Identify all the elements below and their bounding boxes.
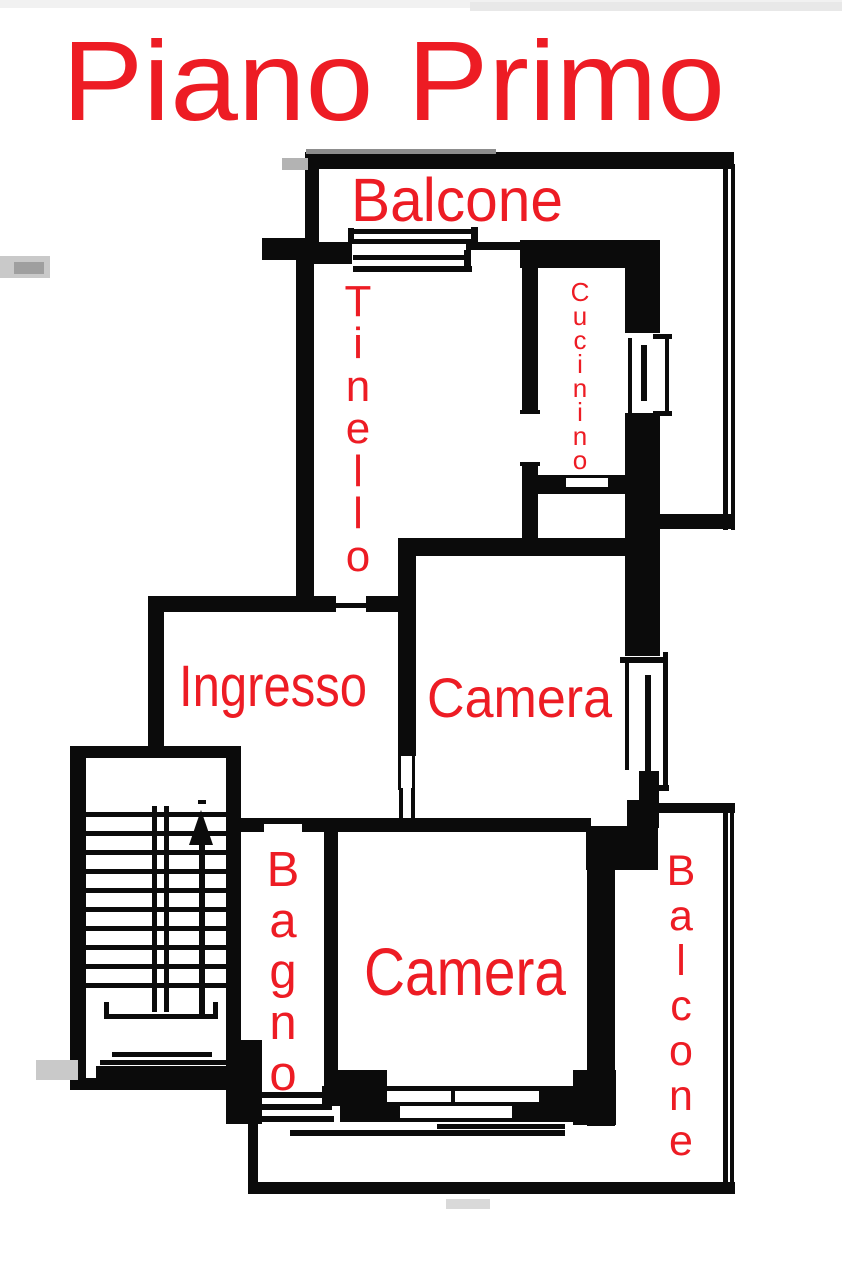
svg-text:Camera: Camera bbox=[364, 935, 567, 1010]
svg-text:Balcone: Balcone bbox=[351, 166, 563, 234]
svg-text:i: i bbox=[353, 319, 363, 368]
svg-text:e: e bbox=[346, 404, 370, 453]
svg-text:a: a bbox=[269, 894, 297, 948]
svg-text:e: e bbox=[669, 1117, 693, 1165]
svg-text:a: a bbox=[669, 892, 693, 940]
svg-text:o: o bbox=[669, 1027, 693, 1075]
svg-text:n: n bbox=[269, 996, 296, 1050]
svg-text:n: n bbox=[669, 1072, 693, 1120]
svg-text:o: o bbox=[573, 445, 587, 475]
svg-text:B: B bbox=[267, 843, 300, 897]
svg-text:g: g bbox=[269, 945, 296, 999]
svg-text:Piano Primo: Piano Primo bbox=[62, 18, 725, 144]
svg-text:Camera: Camera bbox=[427, 666, 613, 729]
svg-text:c: c bbox=[670, 982, 692, 1030]
svg-text:Ingresso: Ingresso bbox=[179, 654, 367, 719]
svg-text:B: B bbox=[667, 847, 696, 895]
svg-text:l: l bbox=[676, 937, 686, 985]
svg-text:o: o bbox=[346, 532, 370, 581]
svg-text:l: l bbox=[353, 489, 363, 538]
